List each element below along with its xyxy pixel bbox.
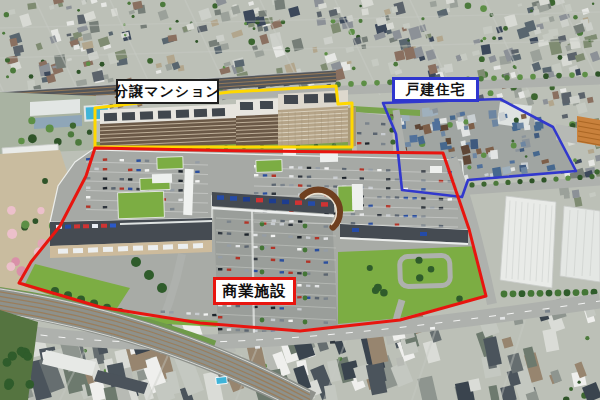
label-condominium-text: 分譲マンション [114,83,221,101]
aerial-site-rendering: 分譲マンション 戸建住宅 商業施設 [0,0,600,400]
label-commercial-facility-text: 商業施設 [223,282,287,301]
label-condominium-area: 分譲マンション [116,79,219,104]
label-commercial-facility-area: 商業施設 [213,277,296,305]
aerial-photo [0,0,600,400]
southwest-park [0,310,38,400]
label-detached-houses-area: 戸建住宅 [392,77,479,102]
label-detached-houses-text: 戸建住宅 [406,81,466,99]
